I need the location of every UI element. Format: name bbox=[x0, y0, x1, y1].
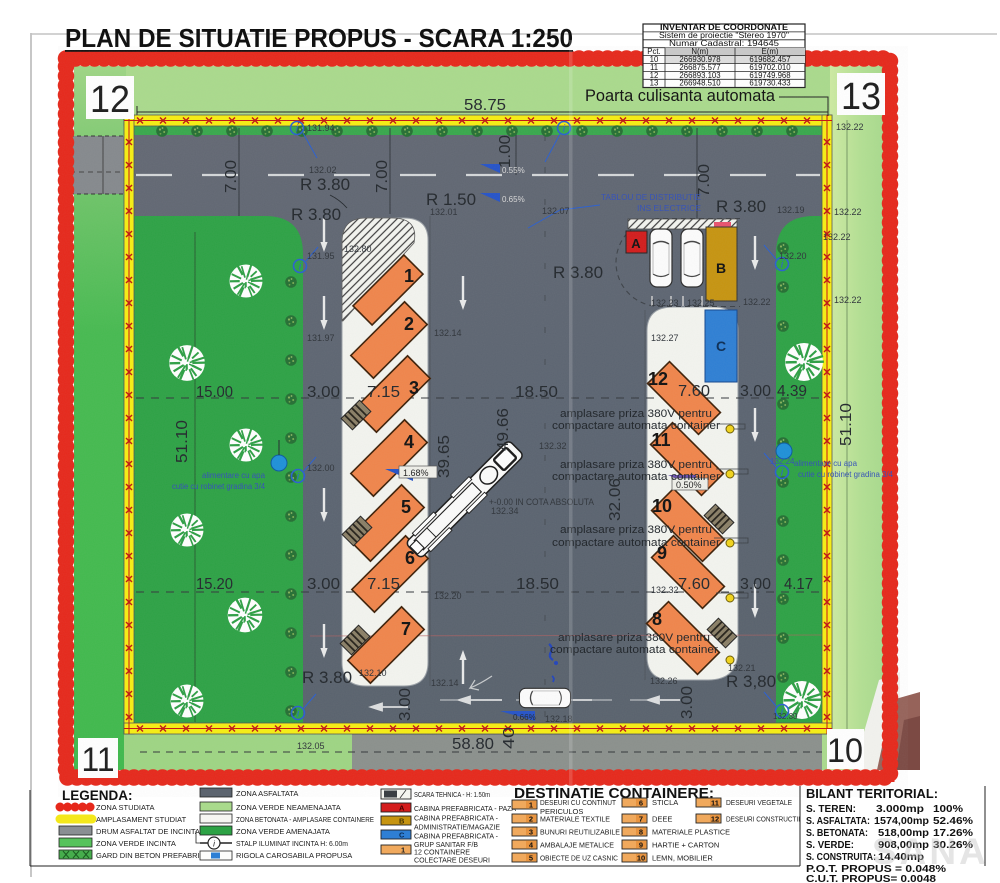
svg-text:S. ASFALTATA:: S. ASFALTATA: bbox=[806, 816, 870, 827]
svg-text:3: 3 bbox=[529, 828, 533, 837]
svg-text:DESEURI VEGETALE: DESEURI VEGETALE bbox=[726, 798, 792, 807]
svg-text:C.U.T. PROPUS= 0.0048: C.U.T. PROPUS= 0.0048 bbox=[806, 874, 937, 883]
svg-text:DRUM ASFALTAT DE INCINTA: DRUM ASFALTAT DE INCINTA bbox=[96, 827, 200, 836]
svg-text:1: 1 bbox=[401, 846, 405, 855]
svg-text:100%: 100% bbox=[933, 804, 963, 815]
svg-text:DESEURI CONSTRUCTII: DESEURI CONSTRUCTII bbox=[726, 815, 800, 824]
svg-text:9: 9 bbox=[639, 841, 643, 850]
svg-text:ADMINISTRATIE/MAGAZIE: ADMINISTRATIE/MAGAZIE bbox=[414, 823, 500, 832]
svg-text:RIGOLA CAROSABILA PROPUSA: RIGOLA CAROSABILA PROPUSA bbox=[236, 851, 352, 860]
svg-text:GARD DIN BETON PREFABRICAT: GARD DIN BETON PREFABRICAT bbox=[96, 851, 214, 860]
svg-text:LEGENDA:: LEGENDA: bbox=[62, 788, 133, 803]
svg-text:3.000mp: 3.000mp bbox=[876, 804, 924, 815]
svg-text:6: 6 bbox=[639, 799, 643, 808]
svg-text:B: B bbox=[399, 817, 405, 826]
svg-text:MATERIALE PLASTICE: MATERIALE PLASTICE bbox=[652, 828, 730, 837]
svg-text:1: 1 bbox=[529, 801, 533, 810]
svg-text:CABINA PREFABRICATA - PAZA: CABINA PREFABRICATA - PAZA bbox=[414, 804, 516, 813]
svg-text:ZONA BETONATA - AMPLASARE CONT: ZONA BETONATA - AMPLASARE CONTAINERE bbox=[236, 815, 374, 824]
svg-text:2: 2 bbox=[529, 815, 533, 824]
svg-text:OBIECTE DE UZ CASNIC: OBIECTE DE UZ CASNIC bbox=[540, 854, 619, 863]
svg-text:ZONA ASFALTATA: ZONA ASFALTATA bbox=[236, 789, 298, 798]
svg-text:8: 8 bbox=[639, 828, 643, 837]
svg-text:ZONA VERDE INCINTA: ZONA VERDE INCINTA bbox=[96, 839, 176, 848]
svg-text:DEEE: DEEE bbox=[652, 815, 672, 824]
svg-text:S. TEREN:: S. TEREN: bbox=[806, 804, 856, 815]
svg-text:LEMN, MOBILIER: LEMN, MOBILIER bbox=[652, 854, 713, 863]
svg-text:5: 5 bbox=[529, 854, 533, 863]
svg-text:52.46%: 52.46% bbox=[933, 816, 973, 827]
svg-text:MATERIALE TEXTILE: MATERIALE TEXTILE bbox=[540, 815, 610, 824]
svg-text:C: C bbox=[399, 831, 405, 840]
svg-text:10: 10 bbox=[637, 854, 645, 863]
svg-text:CABINA PREFABRICATA -: CABINA PREFABRICATA - bbox=[414, 814, 498, 823]
svg-text:ZONA STUDIATA: ZONA STUDIATA bbox=[96, 803, 154, 812]
svg-text:A: A bbox=[399, 804, 405, 813]
svg-text:S. CONSTRUITA:: S. CONSTRUITA: bbox=[806, 852, 876, 863]
svg-text:STICLA: STICLA bbox=[652, 798, 678, 807]
svg-text:i: i bbox=[213, 840, 215, 849]
svg-text:S. VERDE:: S. VERDE: bbox=[806, 840, 854, 851]
svg-text:DESEURI CU CONTINUT: DESEURI CU CONTINUT bbox=[540, 798, 616, 807]
svg-text:11: 11 bbox=[711, 799, 719, 808]
svg-text:HARTIE + CARTON: HARTIE + CARTON bbox=[652, 841, 719, 850]
svg-text:SCARA TEHNICA - H: 1.50m: SCARA TEHNICA - H: 1.50m bbox=[414, 790, 490, 799]
svg-text:S. BETONATA:: S. BETONATA: bbox=[806, 828, 868, 839]
svg-text:AMBALAJE METALICE: AMBALAJE METALICE bbox=[540, 841, 614, 850]
svg-text:SANA: SANA bbox=[872, 831, 989, 872]
svg-text:AMPLASAMENT STUDIAT: AMPLASAMENT STUDIAT bbox=[96, 815, 187, 824]
svg-text:ZONA VERDE NEAMENAJATA: ZONA VERDE NEAMENAJATA bbox=[236, 803, 341, 812]
svg-text:7: 7 bbox=[639, 815, 643, 824]
svg-text:12: 12 bbox=[711, 815, 719, 824]
svg-text:BILANT TERITORIAL:: BILANT TERITORIAL: bbox=[806, 786, 938, 801]
svg-text:STALP ILUMINAT INCINTA H: 6.00: STALP ILUMINAT INCINTA H: 6.00m bbox=[236, 839, 348, 848]
svg-text:BUNURI REUTILIZABILE: BUNURI REUTILIZABILE bbox=[540, 828, 620, 837]
svg-text:1574,00mp: 1574,00mp bbox=[874, 816, 929, 827]
svg-text:ZONA VERDE AMENAJATA: ZONA VERDE AMENAJATA bbox=[236, 827, 330, 836]
svg-text:COLECTARE DESEURI: COLECTARE DESEURI bbox=[414, 856, 490, 865]
